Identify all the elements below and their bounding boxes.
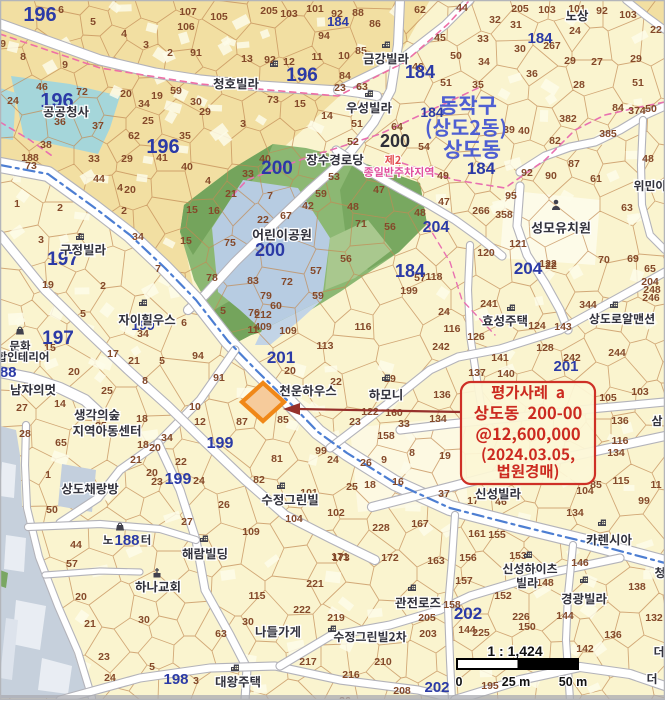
svg-text:56: 56	[384, 221, 396, 233]
svg-text:202: 202	[424, 679, 449, 696]
svg-text:49: 49	[437, 170, 449, 182]
svg-text:51: 51	[440, 77, 452, 89]
svg-text:87: 87	[236, 416, 248, 428]
svg-text:50: 50	[46, 504, 58, 516]
svg-text:47: 47	[373, 184, 385, 196]
svg-text:99: 99	[638, 495, 650, 507]
svg-text:83: 83	[247, 275, 259, 287]
svg-text:63: 63	[215, 628, 227, 640]
svg-text:20: 20	[68, 366, 80, 378]
svg-text:2: 2	[167, 47, 173, 59]
svg-text:137: 137	[468, 367, 486, 379]
svg-text:4: 4	[117, 182, 123, 194]
svg-text:19: 19	[42, 279, 54, 291]
svg-text:204: 204	[423, 219, 450, 236]
svg-text:1 : 1,424: 1 : 1,424	[487, 643, 542, 659]
svg-text:158: 158	[377, 430, 395, 442]
svg-text:141: 141	[491, 352, 509, 364]
svg-text:32: 32	[489, 14, 501, 26]
svg-text:152: 152	[494, 590, 512, 602]
svg-text:143: 143	[554, 321, 572, 333]
svg-text:59: 59	[312, 290, 324, 302]
svg-text:60: 60	[270, 300, 282, 312]
svg-text:204: 204	[514, 259, 543, 278]
svg-text:24: 24	[7, 95, 19, 107]
svg-text:13: 13	[241, 53, 253, 65]
svg-text:25 m: 25 m	[502, 675, 531, 689]
svg-text:9: 9	[381, 454, 387, 466]
svg-text:136: 136	[433, 389, 451, 401]
svg-text:20: 20	[120, 88, 132, 100]
svg-text:200: 200	[261, 158, 293, 179]
svg-text:25: 25	[346, 481, 358, 493]
svg-text:105: 105	[210, 11, 228, 23]
svg-text:226: 226	[512, 611, 530, 623]
svg-text:29: 29	[199, 106, 211, 118]
svg-text:56: 56	[340, 253, 352, 265]
svg-text:18: 18	[137, 439, 149, 451]
svg-text:124: 124	[528, 320, 546, 332]
svg-text:23: 23	[98, 651, 110, 663]
svg-text:33: 33	[242, 168, 254, 180]
svg-text:67: 67	[280, 210, 292, 222]
svg-text:73: 73	[267, 94, 279, 106]
svg-text:20: 20	[124, 184, 136, 196]
svg-text:116: 116	[612, 435, 629, 447]
svg-text:5: 5	[220, 305, 226, 317]
svg-text:36: 36	[526, 68, 538, 80]
svg-text:134: 134	[607, 447, 625, 459]
svg-text:184: 184	[527, 30, 553, 47]
svg-text:136: 136	[604, 629, 622, 641]
svg-text:59: 59	[315, 188, 327, 200]
svg-text:210: 210	[374, 656, 392, 668]
svg-text:90: 90	[545, 170, 557, 182]
svg-text:53: 53	[328, 171, 340, 183]
svg-text:30: 30	[138, 614, 150, 626]
svg-text:95: 95	[505, 190, 517, 202]
svg-text:5: 5	[149, 661, 155, 673]
svg-text:122: 122	[361, 406, 379, 418]
svg-text:5: 5	[159, 355, 165, 367]
svg-text:8: 8	[142, 375, 148, 387]
svg-text:21: 21	[84, 618, 96, 630]
svg-text:221: 221	[306, 578, 324, 590]
svg-text:200: 200	[255, 240, 285, 260]
svg-text:104: 104	[285, 513, 303, 525]
svg-text:201: 201	[553, 358, 578, 375]
svg-text:22: 22	[257, 214, 269, 226]
svg-text:51: 51	[351, 118, 363, 130]
svg-text:2: 2	[100, 280, 106, 292]
svg-text:54: 54	[418, 141, 430, 153]
svg-text:16: 16	[208, 205, 220, 217]
svg-text:5: 5	[90, 16, 96, 28]
svg-text:138: 138	[628, 581, 646, 593]
svg-text:34: 34	[161, 432, 173, 444]
svg-text:34: 34	[138, 98, 150, 110]
svg-text:246: 246	[642, 292, 660, 304]
svg-text:25: 25	[101, 385, 113, 397]
svg-text:184: 184	[327, 14, 349, 29]
svg-text:22: 22	[175, 456, 187, 468]
svg-text:134: 134	[429, 413, 447, 425]
svg-text:156: 156	[459, 552, 477, 564]
svg-text:205: 205	[418, 612, 436, 624]
svg-text:73: 73	[25, 160, 37, 172]
svg-text:33: 33	[88, 153, 100, 165]
svg-text:241: 241	[480, 298, 498, 310]
svg-text:27: 27	[16, 402, 28, 414]
svg-text:30: 30	[242, 616, 254, 628]
svg-text:115: 115	[613, 475, 630, 487]
svg-text:103: 103	[280, 8, 298, 20]
svg-text:18: 18	[136, 413, 148, 425]
svg-text:84: 84	[339, 70, 351, 82]
svg-text:2: 2	[57, 202, 63, 214]
svg-text:12: 12	[194, 416, 206, 428]
svg-text:266: 266	[472, 205, 490, 217]
svg-text:42: 42	[302, 200, 314, 212]
svg-text:63: 63	[621, 202, 633, 214]
svg-text:50: 50	[645, 103, 657, 115]
svg-text:199: 199	[165, 471, 192, 488]
svg-text:84: 84	[612, 102, 624, 114]
svg-text:37: 37	[92, 120, 104, 132]
svg-text:140: 140	[497, 368, 515, 380]
svg-text:4: 4	[205, 175, 211, 187]
svg-text:23: 23	[151, 476, 163, 488]
svg-text:85: 85	[277, 414, 289, 426]
svg-text:27: 27	[591, 56, 603, 68]
svg-text:44: 44	[93, 173, 105, 185]
svg-text:21: 21	[128, 355, 140, 367]
svg-text:70: 70	[598, 254, 610, 266]
svg-text:184: 184	[395, 261, 425, 281]
svg-text:62: 62	[128, 130, 140, 142]
svg-text:120: 120	[477, 247, 495, 259]
svg-text:34: 34	[478, 56, 490, 68]
svg-text:48: 48	[347, 201, 359, 213]
svg-text:28: 28	[573, 79, 585, 91]
svg-text:184: 184	[467, 159, 496, 178]
svg-text:358: 358	[495, 209, 513, 221]
svg-text:188: 188	[0, 364, 17, 381]
svg-text:20: 20	[75, 591, 87, 603]
svg-text:188: 188	[114, 532, 139, 549]
svg-text:144: 144	[556, 610, 574, 622]
svg-text:113: 113	[317, 340, 334, 352]
svg-text:81: 81	[271, 453, 283, 465]
svg-text:38: 38	[40, 139, 52, 151]
svg-text:196: 196	[286, 65, 318, 86]
svg-text:199: 199	[400, 285, 418, 297]
svg-text:103: 103	[631, 386, 649, 398]
svg-text:385: 385	[599, 128, 617, 140]
svg-text:344: 344	[579, 299, 597, 311]
svg-text:63: 63	[356, 81, 368, 93]
svg-text:44: 44	[70, 539, 82, 551]
svg-text:87: 87	[568, 158, 580, 170]
svg-text:24: 24	[569, 25, 581, 37]
svg-text:205: 205	[511, 3, 529, 15]
svg-text:69: 69	[627, 253, 639, 265]
svg-text:5: 5	[80, 308, 86, 320]
svg-text:196: 196	[146, 136, 179, 158]
svg-text:146: 146	[571, 557, 589, 569]
svg-text:105: 105	[599, 392, 617, 404]
svg-text:7: 7	[155, 263, 161, 275]
svg-text:8: 8	[20, 51, 26, 63]
svg-text:86: 86	[369, 18, 381, 30]
svg-text:91: 91	[213, 372, 225, 384]
svg-text:14: 14	[321, 110, 333, 122]
svg-text:88: 88	[352, 7, 364, 19]
svg-text:228: 228	[372, 522, 390, 534]
svg-text:15: 15	[294, 98, 306, 110]
svg-text:26: 26	[360, 457, 372, 469]
svg-text:102: 102	[327, 507, 345, 519]
svg-text:47: 47	[438, 196, 450, 208]
svg-text:107: 107	[179, 6, 197, 18]
svg-text:19: 19	[151, 90, 163, 102]
svg-text:1: 1	[14, 198, 20, 210]
svg-text:50 m: 50 m	[559, 675, 588, 689]
svg-text:52: 52	[347, 136, 359, 148]
svg-text:72: 72	[281, 276, 293, 288]
svg-text:3: 3	[143, 39, 149, 51]
svg-text:17: 17	[107, 348, 119, 360]
svg-text:163: 163	[427, 555, 445, 567]
svg-text:33: 33	[398, 418, 410, 430]
svg-text:115: 115	[249, 590, 266, 602]
svg-text:26: 26	[218, 499, 230, 511]
svg-text:136: 136	[611, 415, 629, 427]
svg-text:116: 116	[444, 323, 461, 335]
svg-text:30: 30	[514, 43, 526, 55]
svg-text:126: 126	[467, 331, 485, 343]
svg-text:128: 128	[536, 342, 554, 354]
svg-text:22: 22	[650, 24, 662, 36]
svg-text:0: 0	[456, 675, 463, 689]
svg-text:11: 11	[311, 51, 322, 63]
svg-text:167: 167	[411, 518, 429, 530]
svg-text:44: 44	[456, 2, 468, 14]
svg-text:34: 34	[132, 231, 144, 243]
svg-text:59: 59	[170, 85, 182, 97]
svg-text:109: 109	[242, 526, 260, 538]
svg-text:92: 92	[596, 5, 608, 17]
svg-text:409: 409	[254, 321, 272, 333]
svg-text:121: 121	[509, 238, 527, 250]
svg-text:134: 134	[566, 507, 584, 519]
svg-text:21: 21	[225, 188, 237, 200]
svg-text:91: 91	[190, 47, 202, 59]
svg-text:61: 61	[590, 173, 602, 185]
svg-text:3: 3	[240, 118, 246, 130]
svg-text:27: 27	[181, 516, 193, 528]
svg-text:184: 184	[405, 62, 435, 82]
svg-text:23: 23	[334, 82, 346, 94]
svg-text:29: 29	[121, 153, 133, 165]
svg-text:29: 29	[564, 55, 576, 67]
svg-text:24: 24	[193, 475, 205, 487]
svg-text:382: 382	[559, 113, 577, 125]
svg-text:51: 51	[632, 77, 644, 89]
svg-text:29: 29	[630, 53, 642, 65]
svg-text:99: 99	[315, 445, 327, 457]
svg-text:37: 37	[438, 488, 450, 500]
svg-text:4: 4	[121, 28, 127, 40]
svg-text:203: 203	[419, 628, 437, 640]
svg-text:24: 24	[327, 454, 339, 466]
svg-text:48: 48	[414, 207, 426, 219]
svg-text:103: 103	[538, 4, 556, 16]
svg-text:1: 1	[45, 469, 51, 481]
svg-text:3: 3	[38, 234, 44, 246]
svg-text:205: 205	[260, 5, 278, 17]
svg-text:217: 217	[299, 656, 317, 668]
svg-text:8: 8	[409, 447, 415, 459]
svg-text:171: 171	[331, 551, 349, 563]
svg-text:118: 118	[426, 271, 443, 283]
svg-text:78: 78	[206, 272, 218, 284]
svg-text:103: 103	[619, 9, 637, 21]
svg-text:2: 2	[121, 205, 127, 217]
svg-text:25: 25	[142, 115, 154, 127]
svg-text:31: 31	[510, 19, 522, 31]
svg-text:155: 155	[488, 529, 506, 541]
svg-text:24: 24	[104, 672, 116, 684]
svg-text:242: 242	[432, 341, 450, 353]
svg-text:204: 204	[641, 276, 659, 288]
svg-text:18: 18	[364, 479, 376, 491]
svg-text:6: 6	[181, 317, 187, 329]
svg-text:195: 195	[481, 680, 499, 692]
svg-text:172: 172	[381, 552, 399, 564]
svg-text:200: 200	[380, 131, 410, 151]
svg-text:82: 82	[253, 474, 265, 486]
svg-text:23: 23	[349, 416, 361, 428]
svg-text:157: 157	[455, 575, 473, 587]
svg-text:45: 45	[434, 32, 446, 44]
svg-text:132: 132	[645, 612, 663, 624]
svg-text:40: 40	[181, 161, 193, 173]
svg-text:101: 101	[306, 3, 324, 15]
svg-text:65: 65	[55, 437, 67, 449]
svg-text:57: 57	[310, 265, 322, 277]
svg-text:40: 40	[518, 125, 530, 137]
svg-text:20: 20	[149, 442, 161, 454]
svg-text:202: 202	[454, 604, 482, 623]
svg-text:212: 212	[254, 309, 272, 321]
svg-text:72: 72	[76, 86, 88, 98]
svg-text:9: 9	[62, 59, 68, 71]
svg-text:116: 116	[355, 321, 372, 333]
svg-text:82: 82	[549, 135, 561, 147]
svg-text:6: 6	[58, 4, 64, 16]
svg-text:196: 196	[23, 4, 56, 26]
svg-text:15: 15	[186, 204, 198, 216]
svg-text:24: 24	[438, 306, 450, 318]
svg-text:15: 15	[180, 235, 192, 247]
svg-text:106: 106	[177, 21, 195, 33]
svg-text:33: 33	[477, 33, 489, 45]
svg-text:219: 219	[327, 612, 345, 624]
svg-text:94: 94	[192, 350, 204, 362]
svg-text:222: 222	[293, 604, 311, 616]
svg-text:92: 92	[521, 167, 533, 179]
svg-text:197: 197	[42, 328, 74, 349]
svg-text:57: 57	[66, 558, 78, 570]
svg-text:16: 16	[392, 476, 404, 488]
svg-text:50: 50	[450, 50, 462, 62]
svg-text:7: 7	[267, 190, 273, 202]
svg-text:71: 71	[355, 218, 367, 230]
svg-text:244: 244	[608, 347, 626, 359]
svg-text:21: 21	[130, 454, 142, 466]
svg-text:11: 11	[650, 479, 661, 491]
svg-text:62: 62	[414, 4, 426, 16]
svg-text:35: 35	[179, 130, 191, 142]
svg-text:142: 142	[576, 643, 594, 655]
svg-text:28: 28	[19, 428, 31, 440]
svg-text:198: 198	[163, 671, 188, 688]
svg-text:10: 10	[189, 401, 201, 413]
svg-text:104: 104	[576, 485, 594, 497]
svg-text:3: 3	[193, 675, 199, 687]
svg-text:225: 225	[472, 627, 490, 639]
svg-text:161: 161	[468, 528, 486, 540]
svg-text:109: 109	[279, 325, 297, 337]
svg-text:19: 19	[439, 450, 451, 462]
svg-text:10: 10	[338, 50, 350, 62]
svg-text:35: 35	[472, 79, 484, 91]
svg-text:75: 75	[224, 237, 236, 249]
svg-text:216: 216	[342, 669, 360, 681]
svg-text:374: 374	[628, 105, 646, 117]
svg-text:201: 201	[267, 348, 295, 367]
svg-text:65: 65	[644, 263, 656, 275]
svg-text:94: 94	[318, 30, 330, 42]
svg-text:199: 199	[207, 435, 234, 452]
svg-text:14: 14	[54, 398, 66, 410]
svg-text:48: 48	[642, 153, 654, 165]
